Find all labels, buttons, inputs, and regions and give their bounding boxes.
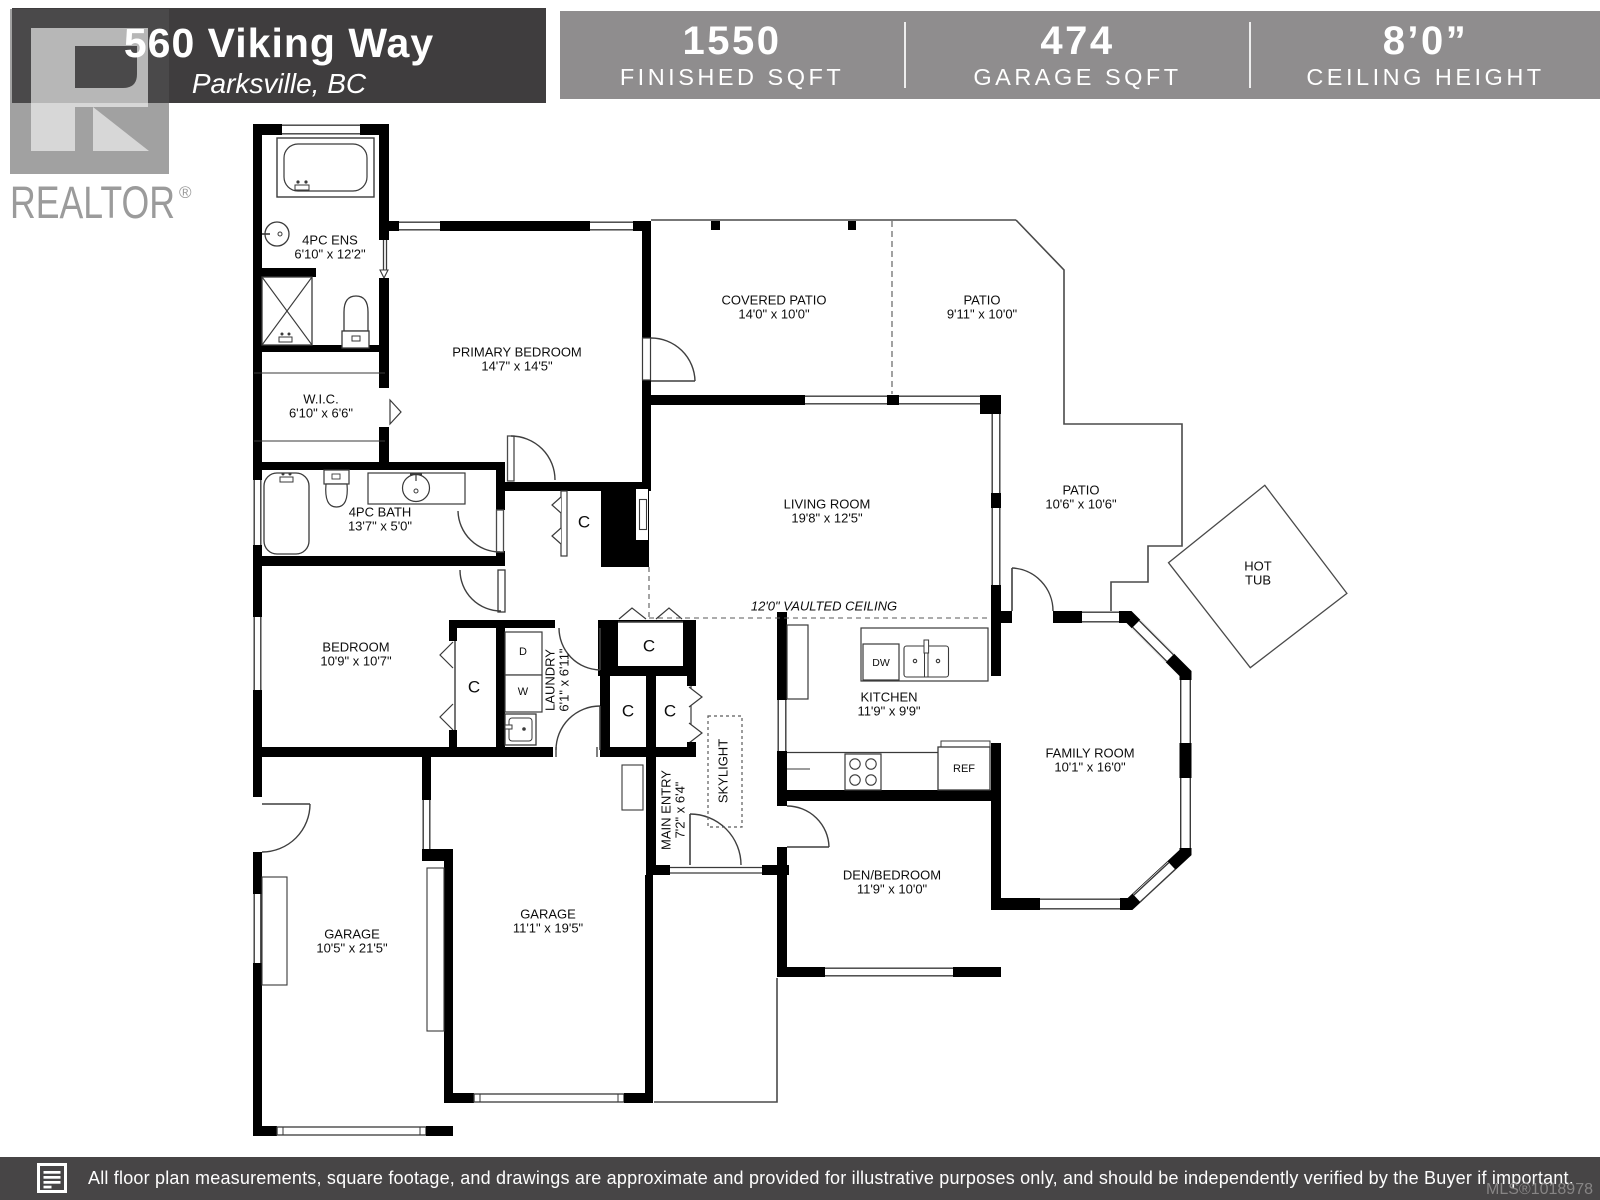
- svg-text:TUB: TUB: [1245, 573, 1271, 588]
- svg-text:10'9" x 10'7": 10'9" x 10'7": [320, 654, 392, 669]
- svg-text:MAIN ENTRY: MAIN ENTRY: [658, 770, 673, 850]
- svg-text:PATIO: PATIO: [1062, 482, 1099, 497]
- svg-text:LIVING ROOM: LIVING ROOM: [784, 496, 871, 511]
- svg-text:12'0" VAULTED CEILING: 12'0" VAULTED CEILING: [751, 598, 897, 613]
- svg-text:C: C: [622, 701, 634, 720]
- svg-text:10'1" x 16'0": 10'1" x 16'0": [1054, 760, 1126, 775]
- svg-text:6'10" x 6'6": 6'10" x 6'6": [289, 406, 353, 421]
- svg-text:4PC ENS: 4PC ENS: [302, 232, 358, 247]
- svg-text:C: C: [664, 701, 676, 720]
- svg-text:C: C: [468, 677, 480, 696]
- svg-text:GARAGE: GARAGE: [324, 926, 380, 941]
- svg-text:COVERED PATIO: COVERED PATIO: [722, 292, 827, 307]
- svg-text:11'9" x 10'0": 11'9" x 10'0": [857, 882, 928, 897]
- svg-text:14'0" x 10'0": 14'0" x 10'0": [738, 307, 810, 322]
- svg-text:10'6" x 10'6": 10'6" x 10'6": [1045, 497, 1117, 512]
- svg-text:DEN/BEDROOM: DEN/BEDROOM: [843, 867, 941, 882]
- svg-text:9'11" x 10'0": 9'11" x 10'0": [947, 307, 1018, 322]
- svg-text:14'7" x 14'5": 14'7" x 14'5": [481, 359, 553, 374]
- svg-text:HOT: HOT: [1244, 558, 1272, 573]
- svg-text:4PC BATH: 4PC BATH: [349, 504, 412, 519]
- svg-text:W.I.C.: W.I.C.: [303, 391, 338, 406]
- svg-text:7'2" x 6'4": 7'2" x 6'4": [673, 781, 688, 838]
- svg-text:DW: DW: [872, 657, 890, 669]
- svg-text:SKYLIGHT: SKYLIGHT: [715, 739, 730, 803]
- svg-text:11'1" x 19'5": 11'1" x 19'5": [513, 921, 584, 936]
- svg-text:®: ®: [179, 183, 192, 202]
- svg-text:10'5" x 21'5": 10'5" x 21'5": [316, 941, 388, 956]
- svg-text:PATIO: PATIO: [963, 292, 1000, 307]
- svg-text:GARAGE: GARAGE: [520, 906, 576, 921]
- svg-text:FAMILY ROOM: FAMILY ROOM: [1045, 745, 1134, 760]
- svg-text:D: D: [519, 646, 527, 658]
- svg-text:LAUNDRY: LAUNDRY: [542, 649, 557, 711]
- svg-text:C: C: [643, 636, 655, 655]
- svg-text:13'7" x 5'0": 13'7" x 5'0": [348, 519, 412, 534]
- svg-text:W: W: [518, 686, 529, 698]
- svg-text:19'8" x 12'5": 19'8" x 12'5": [791, 511, 863, 526]
- svg-text:6'1" x 6'11": 6'1" x 6'11": [557, 648, 572, 711]
- svg-text:REF: REF: [953, 763, 975, 775]
- svg-text:6'10" x 12'2": 6'10" x 12'2": [294, 247, 366, 262]
- svg-text:REALTOR: REALTOR: [10, 177, 175, 224]
- svg-text:C: C: [578, 512, 590, 531]
- svg-text:PRIMARY BEDROOM: PRIMARY BEDROOM: [452, 344, 582, 359]
- svg-text:11'9" x 9'9": 11'9" x 9'9": [857, 704, 920, 719]
- svg-text:BEDROOM: BEDROOM: [322, 639, 389, 654]
- svg-text:KITCHEN: KITCHEN: [860, 689, 917, 704]
